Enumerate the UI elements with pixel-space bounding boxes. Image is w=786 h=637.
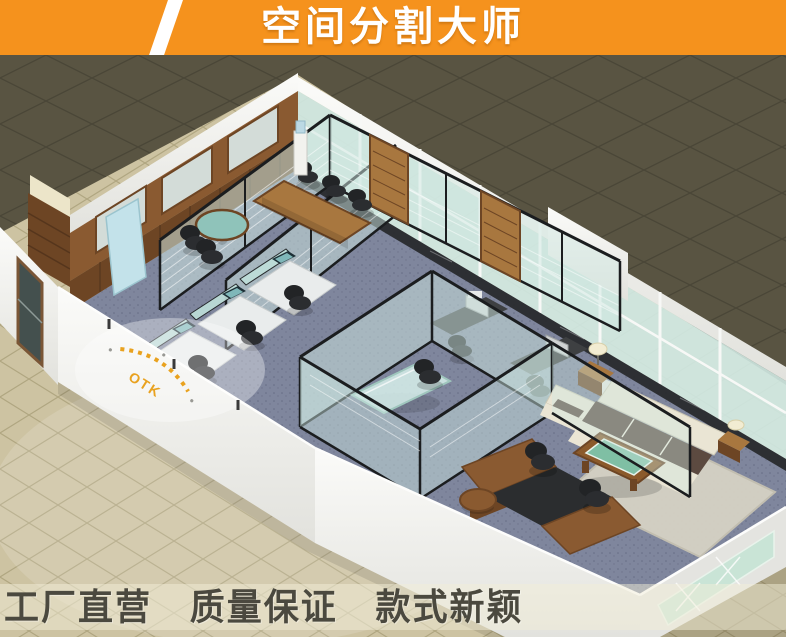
slogan-new-styles: 款式新颖 — [376, 587, 524, 628]
water-dispenser — [294, 121, 307, 175]
office-3d-render: OTK — [0, 55, 786, 637]
promo-image: 空间分割大师 — [0, 0, 786, 637]
slogan-quality: 质量保证 — [190, 587, 338, 628]
banner-title: 空间分割大师 — [0, 0, 786, 55]
slogan-factory-direct: 工厂直营 — [4, 587, 152, 628]
title-banner: 空间分割大师 — [0, 0, 786, 55]
slogan-text: 工厂直营 质量保证 款式新颖 — [4, 584, 786, 632]
round-side-table — [460, 489, 496, 514]
poster-board — [106, 199, 146, 295]
